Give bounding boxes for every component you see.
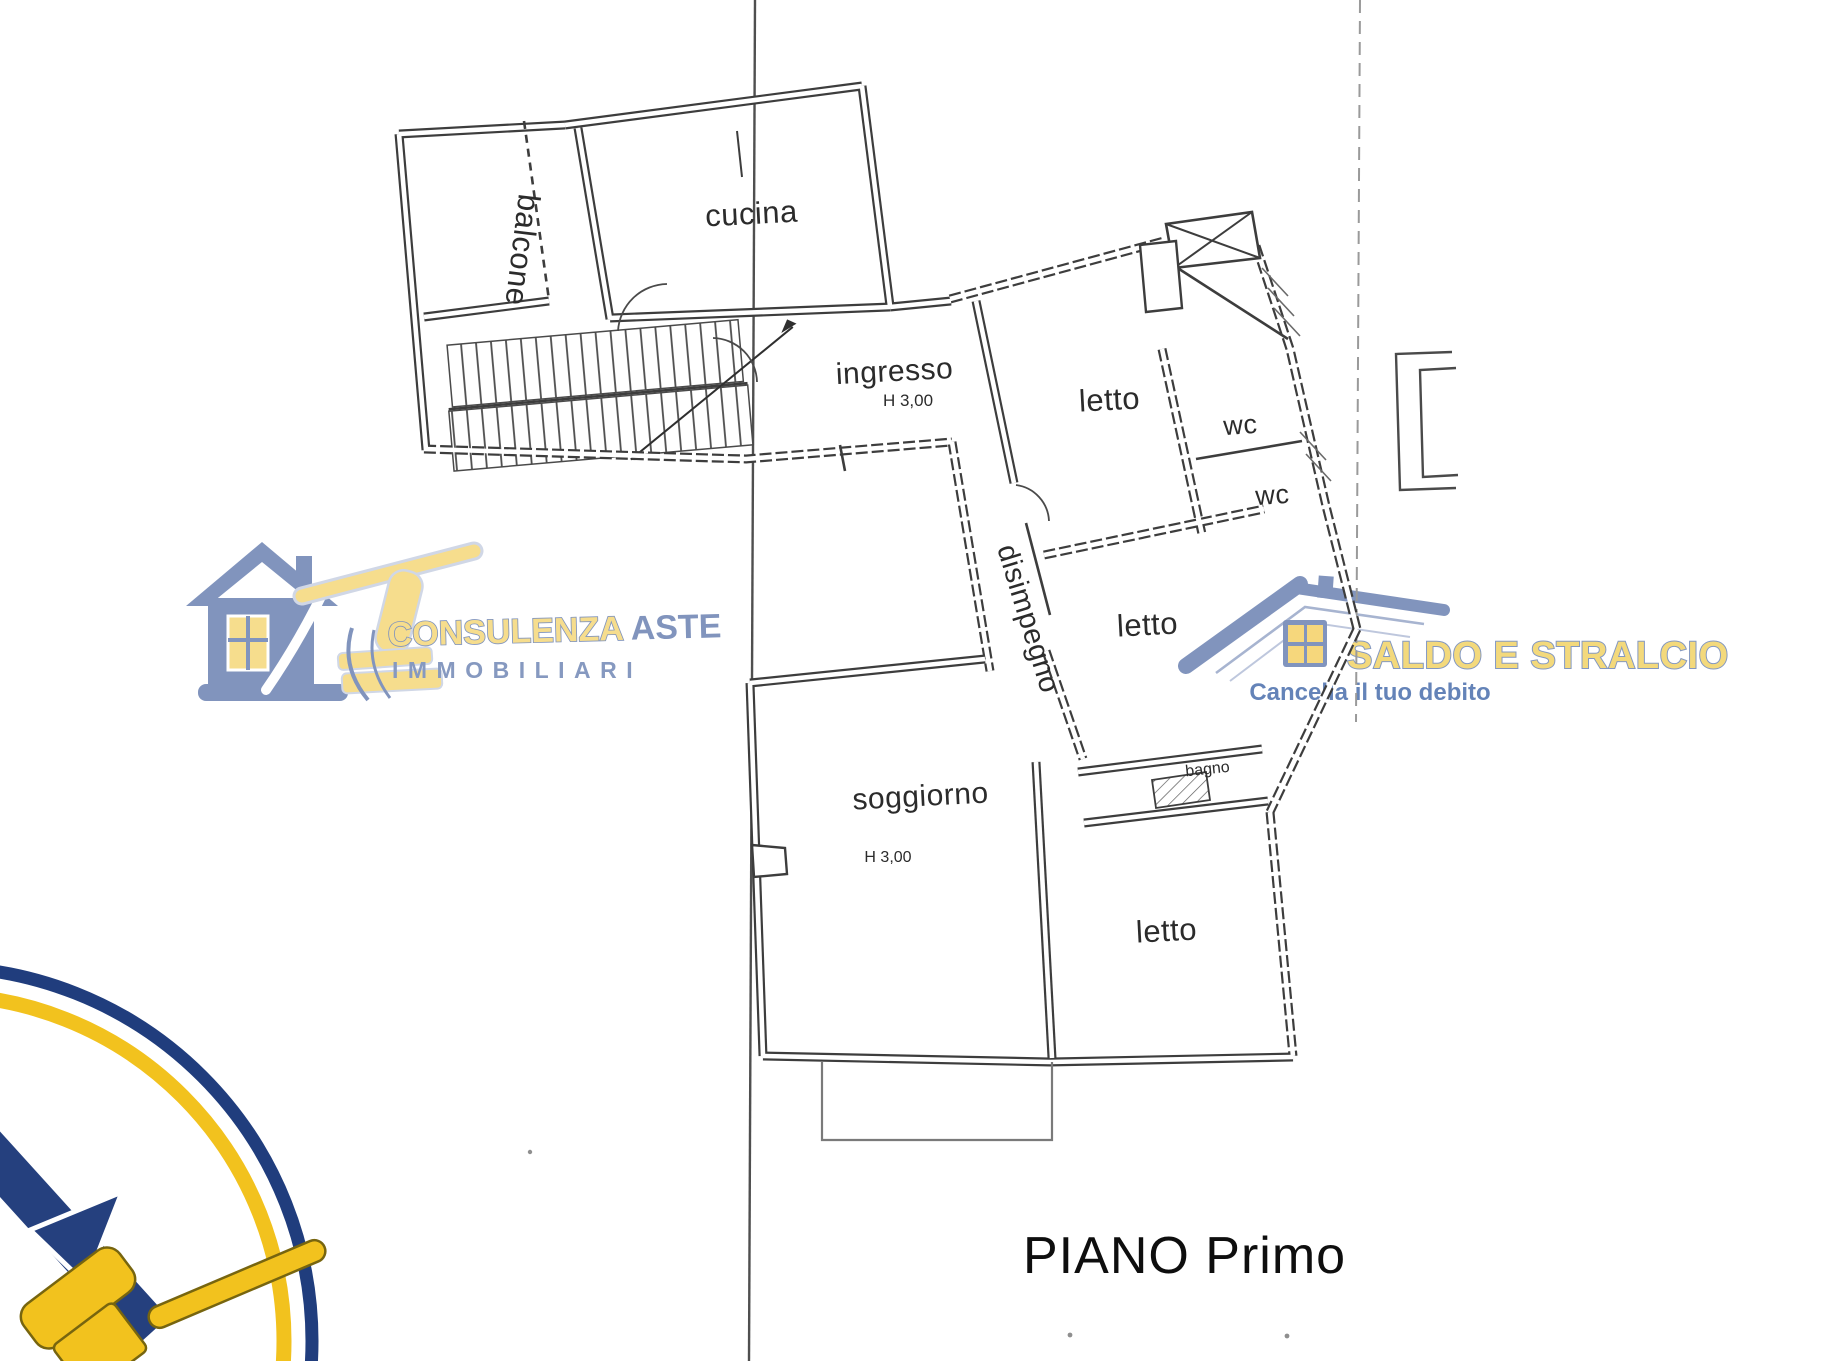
label-soggiorno-height: H 3,00	[864, 849, 911, 866]
floor-title: PIANO Primo	[1023, 1227, 1346, 1285]
room-label-letto-bottom: letto	[1135, 911, 1198, 949]
consulenza-aste-logo: CONSULENZA ASTE IMMOBILIARI	[186, 542, 722, 701]
room-label-letto-top: letto	[1078, 380, 1141, 418]
shaft-box	[1140, 212, 1260, 312]
room-label-balcone: balcone	[498, 192, 546, 308]
room-label-wc-bottom: wc	[1253, 479, 1290, 511]
saldo-stralcio-logo: SALDO E STRALCIO Cancella il tuo debito	[1186, 576, 1729, 706]
saldo-subtitle: Cancella il tuo debito	[1249, 679, 1490, 706]
label-ingresso-height: H 3,00	[883, 391, 933, 410]
room-label-bagno: bagno	[1185, 759, 1231, 781]
room-label-ingresso: ingresso	[835, 352, 954, 391]
consulenza-title-accent: ASTE	[630, 607, 722, 647]
room-label-soggiorno: soggiorno	[852, 776, 990, 816]
room-label-cucina: cucina	[704, 194, 799, 234]
room-label-letto-middle: letto	[1116, 605, 1179, 643]
adjacent-plan-fragment	[1396, 352, 1458, 490]
house-window-icon	[228, 616, 268, 670]
window-icon	[1283, 620, 1327, 667]
saldo-title: SALDO E STRALCIO	[1347, 635, 1729, 677]
consulenza-title: CONSULENZA ASTE	[387, 607, 722, 654]
wall-notch	[752, 845, 787, 877]
floorplan-document: CONSULENZA ASTE IMMOBILIARI SALDO E STRA…	[0, 0, 1847, 1361]
room-label-disimpegno: disimpegno	[990, 541, 1065, 697]
lower-balcony	[822, 1062, 1052, 1140]
consulenza-title-main: CONSULENZA	[387, 610, 623, 654]
auction-badge-logo	[0, 967, 329, 1361]
consulenza-subtitle: IMMOBILIARI	[392, 657, 642, 683]
room-label-wc-top: wc	[1221, 409, 1258, 441]
